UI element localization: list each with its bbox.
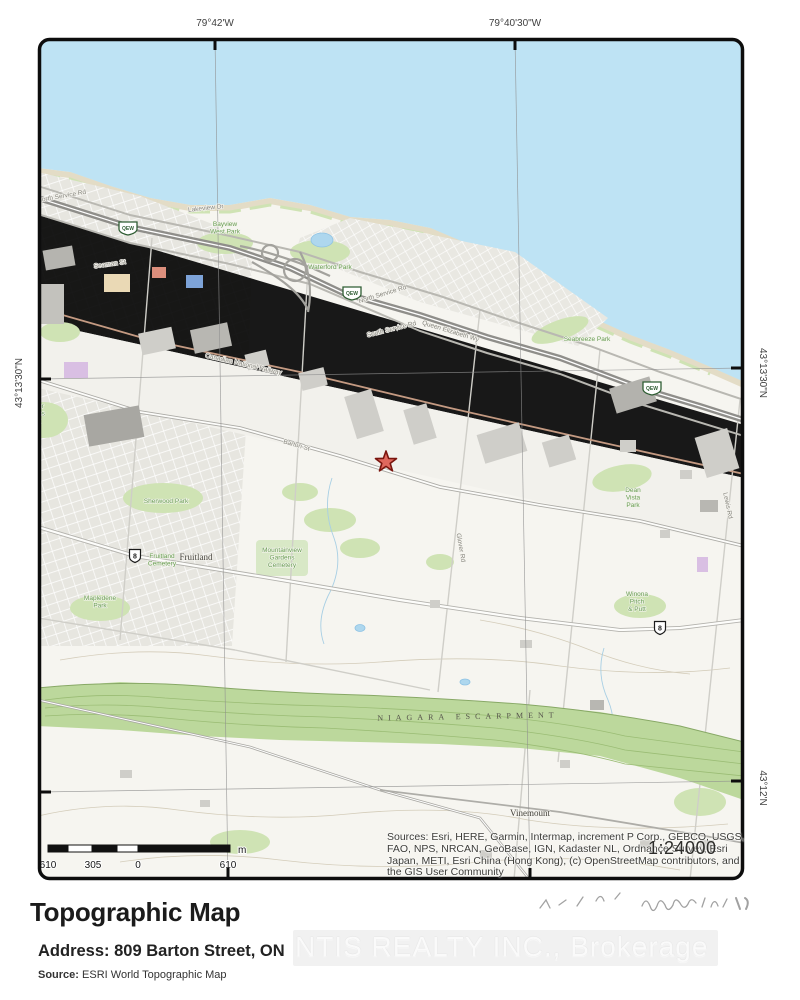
- longitude-label-2: 79°40'30"W: [489, 18, 542, 29]
- illegible-scribble: [530, 888, 770, 922]
- qew-shield-2: QEW: [343, 287, 361, 300]
- svg-text:QEW: QEW: [646, 386, 658, 392]
- scale-unit: m: [238, 845, 246, 856]
- hwy8-shield-2: 8: [655, 622, 666, 635]
- park-label-sherwood: Sherwood Park: [144, 498, 189, 505]
- park-label-seabreeze: Seabreeze Park: [564, 336, 611, 343]
- svg-text:QEW: QEW: [122, 226, 134, 232]
- source-label: Source:: [38, 969, 79, 981]
- longitude-label-1: 79°42'W: [196, 18, 234, 29]
- park-label-waterford: Waterford Park: [308, 264, 352, 271]
- latitude-label-left-1: 43°13'30"N: [14, 358, 25, 408]
- scale-ratio: 1:24000: [648, 838, 717, 859]
- address-line: Address: 809 Barton Street, ON: [38, 942, 285, 961]
- page: North Service RdNorth Service RdSouth Se…: [0, 0, 800, 1000]
- scale-value-2: 0: [135, 860, 141, 871]
- park-label-bayview-west: BayviewWest Park: [210, 221, 241, 235]
- address-value: 809 Barton Street, ON: [114, 942, 285, 960]
- page-title: Topographic Map: [30, 897, 240, 928]
- address-label: Address:: [38, 942, 110, 960]
- park-label-dean-vista: DeanVistaPark: [625, 487, 641, 509]
- svg-text:8: 8: [658, 626, 662, 633]
- scale-value-1: 305: [85, 860, 102, 871]
- qew-shield-3: QEW: [643, 382, 661, 395]
- hwy8-shield-1: 8: [130, 550, 141, 563]
- latitude-label-right-2: 43°12'N: [757, 770, 768, 805]
- qew-shield-1: QEW: [119, 222, 137, 235]
- scale-value-0: 610: [40, 860, 57, 871]
- place-label-vinemount: Vinemount: [510, 808, 550, 818]
- source-value: ESRI World Topographic Map: [82, 969, 227, 981]
- svg-text:QEW: QEW: [346, 291, 358, 297]
- brokerage-watermark: NTIS REALTY INC., Brokerage: [293, 930, 718, 966]
- source-line: Source: ESRI World Topographic Map: [38, 969, 227, 981]
- latitude-label-right-1: 43°13'30"N: [757, 348, 768, 398]
- svg-text:8: 8: [133, 554, 137, 561]
- place-label-fruitland: Fruitland: [180, 552, 213, 562]
- cemetery-label-fruitland: FruitlandCemetery: [148, 553, 177, 567]
